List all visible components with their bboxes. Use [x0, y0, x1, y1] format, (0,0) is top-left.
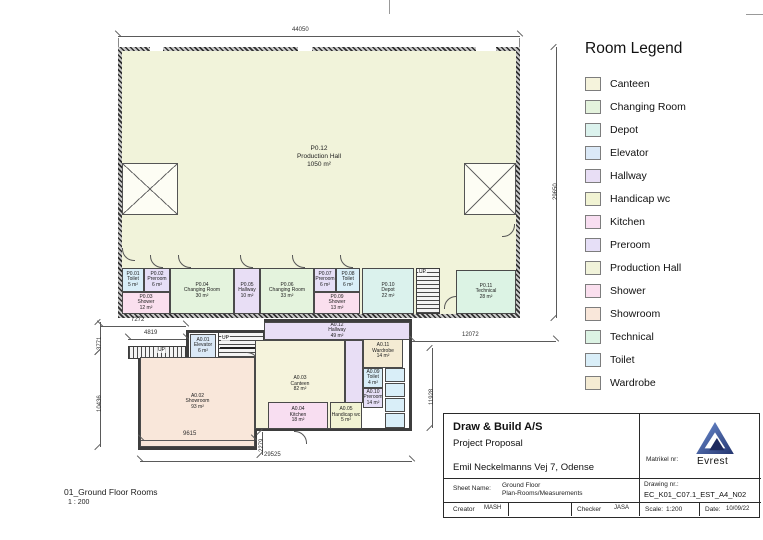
drawing-nr-value: EC_K01_C07.1_EST_A4_N02: [644, 490, 746, 499]
legend-swatch: [585, 192, 601, 206]
legend-swatch: [585, 307, 601, 321]
legend-swatch: [585, 100, 601, 114]
legend-swatch: [585, 238, 601, 252]
legend-swatch: [585, 215, 601, 229]
room-P0.05: P0.05Hallway10 m²: [234, 268, 260, 314]
legend-item-label: Changing Room: [610, 101, 686, 113]
room-A0.12: A0.12Hallway49 m²: [264, 322, 410, 340]
legend-item-label: Shower: [610, 285, 646, 297]
room-P0.04: P0.04Changing Room30 m²: [170, 268, 234, 314]
wall-door-gap: [298, 47, 312, 51]
sheet-name-label: Sheet Name:: [453, 485, 491, 492]
checker-label: Checker: [577, 506, 601, 513]
checker-value: JASA: [614, 505, 629, 511]
room-A0.05: A0.05Handicap wc5 m²: [330, 402, 362, 429]
scale-value: 1:200: [666, 506, 682, 513]
legend-swatch: [585, 146, 601, 160]
dim-label: 12072: [462, 332, 479, 338]
date-label: Date:: [705, 506, 721, 513]
legend-item: Technical: [585, 325, 755, 348]
room-A0.10: A0.10Preroom14 m²: [363, 388, 383, 408]
legend-item-label: Preroom: [610, 239, 650, 251]
dim-label: 44050: [292, 27, 309, 33]
legend-item: Preroom: [585, 233, 755, 256]
legend-item-label: Wardrobe: [610, 377, 656, 389]
sheet-name-line2: Plan-Rooms/Measurements: [502, 490, 583, 497]
legend-item: Handicap wc: [585, 187, 755, 210]
project-type: Project Proposal: [453, 438, 523, 449]
dim-line-upper-left-a: [100, 326, 186, 327]
legend-item-label: Handicap wc: [610, 193, 670, 205]
sheet-frame-tick: [746, 14, 763, 15]
room-P0.06: P0.06Changing Room33 m²: [260, 268, 314, 314]
dim-label: 2279: [259, 439, 265, 452]
title-block: Draw & Build A/S Project Proposal Emil N…: [443, 413, 760, 518]
room-area: 6 m²: [152, 283, 162, 289]
room-area: 4 m²: [368, 381, 378, 387]
legend-swatch: [585, 376, 601, 390]
legend-item: Toilet: [585, 348, 755, 371]
legend-item-label: Technical: [610, 331, 654, 343]
room-A0.09: A0.09Toilet4 m²: [363, 368, 383, 388]
legend-item: Hallway: [585, 164, 755, 187]
legend-item-label: Elevator: [610, 147, 649, 159]
legend-item-label: Depot: [610, 124, 638, 136]
room-area: 13 m²: [331, 306, 344, 312]
door-arc: [294, 431, 307, 444]
legend-swatch: [585, 284, 601, 298]
wc-stall: [385, 368, 405, 382]
room-A0.04: A0.04Kitchen18 m²: [268, 402, 328, 429]
creator-label: Creator: [453, 506, 475, 513]
up-label: UP: [221, 335, 230, 341]
project-address: Emil Neckelmanns Vej 7, Odense: [453, 462, 594, 473]
legend-item: Shower: [585, 279, 755, 302]
room-P0.11: P0.11Technical28 m²: [456, 270, 516, 314]
scale-label: Scale:: [645, 506, 663, 513]
matrikel-label: Matrikel nr:: [646, 456, 678, 463]
legend-item: Elevator: [585, 141, 755, 164]
extension-line: [118, 38, 119, 47]
room-area: 1050 m²: [307, 161, 331, 169]
room-area: 5 m²: [128, 283, 138, 289]
legend-item: Kitchen: [585, 210, 755, 233]
dim-label: 29650: [553, 183, 559, 200]
room-P0.09: P0.09Shower13 m²: [314, 292, 360, 314]
dim-line-annex-width: [140, 461, 412, 462]
legend-item-label: Showroom: [610, 308, 660, 320]
dim-label: 10436: [97, 395, 103, 412]
legend-swatch: [585, 330, 601, 344]
room-area: 14 m²: [367, 401, 380, 407]
up-label: UP: [157, 347, 166, 353]
room-area: 30 m²: [196, 294, 209, 300]
room-area: 22 m²: [382, 294, 395, 300]
legend-item: Production Hall: [585, 256, 755, 279]
legend-items: CanteenChanging RoomDepotElevatorHallway…: [585, 72, 755, 394]
legend-item: Canteen: [585, 72, 755, 95]
room-area: 14 m²: [377, 354, 390, 360]
title-block-divider: [444, 502, 761, 503]
legend-item: Showroom: [585, 302, 755, 325]
room-A0.01: A0.01Elevator6 m²: [190, 334, 216, 358]
wc-stall: [385, 383, 405, 397]
legend-item-label: Hallway: [610, 170, 647, 182]
legend-title: Room Legend: [585, 40, 755, 58]
title-block-divider: [508, 502, 509, 516]
room-area: 93 m²: [191, 405, 204, 411]
room-P0.08: P0.08Toilet6 m²: [336, 268, 360, 292]
title-block-divider: [699, 502, 700, 516]
drawing-sheet: UP UP UP P0.01Toilet5 m²P0.02Preroom6 m²…: [0, 0, 763, 540]
drawing-nr-label: Drawing nr.:: [644, 481, 679, 488]
room-area: 49 m²: [331, 334, 344, 340]
dim-line-hall-width: [118, 36, 520, 37]
room-legend: Room Legend CanteenChanging RoomDepotEle…: [585, 40, 755, 394]
room-area: 6 m²: [343, 283, 353, 289]
room-area: 12 m²: [140, 306, 153, 312]
title-block-divider: [571, 502, 572, 516]
legend-swatch: [585, 123, 601, 137]
wc-stall: [385, 413, 405, 428]
legend-item-label: Kitchen: [610, 216, 645, 228]
room-A0.02: A0.02Showroom93 m²: [140, 357, 255, 447]
room-area: 6 m²: [198, 349, 208, 355]
room-name: Production Hall: [297, 153, 341, 161]
legend-item-label: Toilet: [610, 354, 635, 366]
legend-swatch: [585, 261, 601, 275]
dim-line-upper-left-b: [128, 339, 186, 340]
room-area: 5 m²: [341, 418, 351, 424]
extension-line: [519, 38, 520, 47]
legend-item: Depot: [585, 118, 755, 141]
up-label: UP: [418, 269, 427, 275]
room-P0.07: P0.07Preroom6 m²: [314, 268, 336, 292]
annex-wall: [186, 330, 189, 358]
dim-label: 29525: [264, 452, 281, 458]
room-area: 6 m²: [320, 283, 330, 289]
wall-door-gap: [476, 47, 496, 51]
wall-door-gap: [150, 47, 163, 51]
dim-label: 11928: [429, 389, 435, 405]
room-area: 33 m²: [281, 294, 294, 300]
legend-item-label: Production Hall: [610, 262, 681, 274]
room-area: 82 m²: [294, 387, 307, 393]
sheet-name-line1: Ground Floor: [502, 482, 540, 489]
title-block-divider: [639, 414, 640, 516]
evrest-logo-text: Evrest: [697, 456, 728, 467]
view-title: 01_Ground Floor Rooms: [64, 487, 158, 497]
room-P0.12: P0.12Production Hall1050 m²: [118, 140, 520, 174]
dim-label: 9615: [183, 431, 196, 437]
wc-stall: [385, 398, 405, 412]
legend-item: Changing Room: [585, 95, 755, 118]
legend-swatch: [585, 169, 601, 183]
dim-label: 4819: [144, 330, 157, 336]
room-area: 18 m²: [292, 418, 305, 424]
company-name: Draw & Build A/S: [453, 421, 542, 433]
legend-item-label: Canteen: [610, 78, 650, 90]
legend-item: Wardrobe: [585, 371, 755, 394]
view-scale: 1 : 200: [68, 499, 89, 506]
room-area: 10 m²: [241, 294, 254, 300]
room-P0.10: P0.10Depot22 m²: [362, 268, 414, 314]
room-P0.01: P0.01Toilet5 m²: [122, 268, 144, 292]
hallway-corridor: [345, 340, 363, 403]
dim-line-showroom-width: [141, 440, 254, 441]
dim-label: 7272: [131, 317, 144, 323]
date-value: 10/09/22: [726, 506, 749, 512]
room-id: P0.12: [311, 145, 328, 153]
sheet-frame-tick: [389, 0, 390, 14]
legend-swatch: [585, 77, 601, 91]
creator-value: MASH: [484, 505, 501, 511]
annex-wall: [138, 447, 257, 450]
evrest-logo-icon: [696, 422, 734, 454]
room-P0.03: P0.03Shower12 m²: [122, 292, 170, 314]
room-P0.02: P0.02Preroom6 m²: [144, 268, 170, 292]
title-block-divider: [444, 478, 761, 479]
room-area: 28 m²: [480, 295, 493, 301]
legend-swatch: [585, 353, 601, 367]
dim-line-mid-right: [412, 341, 556, 342]
